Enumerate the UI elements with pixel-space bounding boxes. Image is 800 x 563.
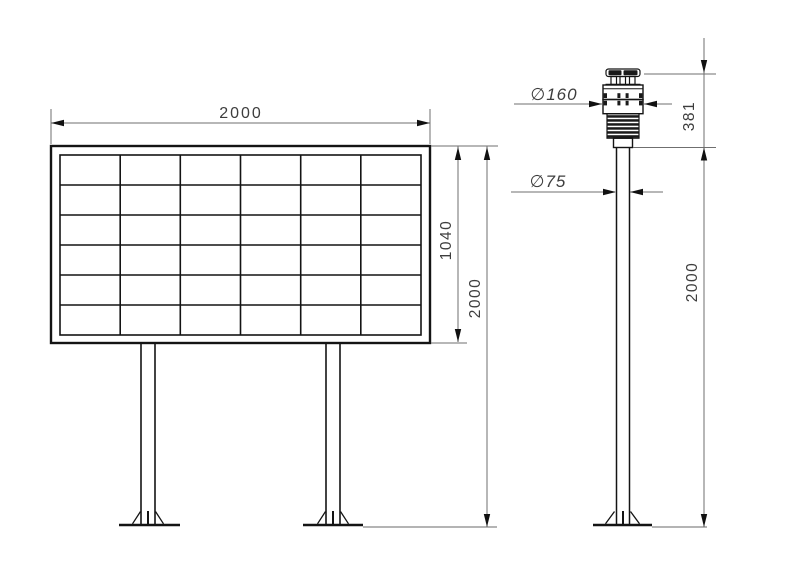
sensor-posts [606, 77, 641, 85]
arrow-right-icon [589, 101, 602, 107]
arrow-up-icon [455, 147, 461, 160]
technical-drawing: 2000 1040 2000 [0, 0, 800, 563]
sensor-height-dimension: 381 [633, 38, 716, 527]
pole-diameter-dimension: ∅75 [511, 172, 663, 195]
arrow-down-icon [455, 329, 461, 342]
pole-diameter-label: ∅75 [530, 172, 567, 191]
board-width-label: 2000 [219, 105, 263, 122]
board-total-height-label: 2000 [467, 278, 484, 318]
arrow-up-icon [484, 147, 490, 160]
sensor-upper-body [603, 85, 643, 100]
board-cell-grid [60, 155, 421, 335]
arrow-left-icon [644, 101, 657, 107]
arrow-down-icon [701, 60, 707, 73]
sensor-cap [606, 69, 640, 77]
board-panel-height-dimension: 1040 [431, 146, 498, 343]
board-width-dimension: 2000 [51, 105, 430, 144]
arrow-right-icon [417, 120, 430, 127]
board-panel-height-label: 1040 [438, 220, 455, 260]
pole-height-label: 2000 [684, 262, 701, 302]
sensor-diameter-label: ∅160 [530, 85, 577, 104]
station-pole [617, 148, 630, 525]
drawing-canvas: 2000 1040 2000 [0, 0, 800, 563]
board-right-leg [303, 343, 363, 525]
weather-station-view [593, 69, 652, 525]
arrow-right-icon [603, 189, 616, 195]
station-base [593, 511, 652, 525]
arrow-down-icon [484, 514, 490, 527]
sensor-neck [614, 138, 633, 147]
display-board-view [51, 146, 430, 525]
arrow-left-icon [51, 120, 64, 127]
arrow-down-icon [701, 514, 707, 527]
arrow-up-icon [701, 148, 707, 161]
sensor-lower-body [603, 100, 643, 114]
sensor-height-label: 381 [681, 101, 698, 131]
board-total-height-dimension: 2000 [467, 146, 490, 527]
sensor-diameter-dimension: ∅160 [514, 85, 672, 107]
sensor-louvers [607, 114, 639, 139]
arrow-left-icon [630, 189, 643, 195]
board-left-leg [119, 343, 180, 525]
